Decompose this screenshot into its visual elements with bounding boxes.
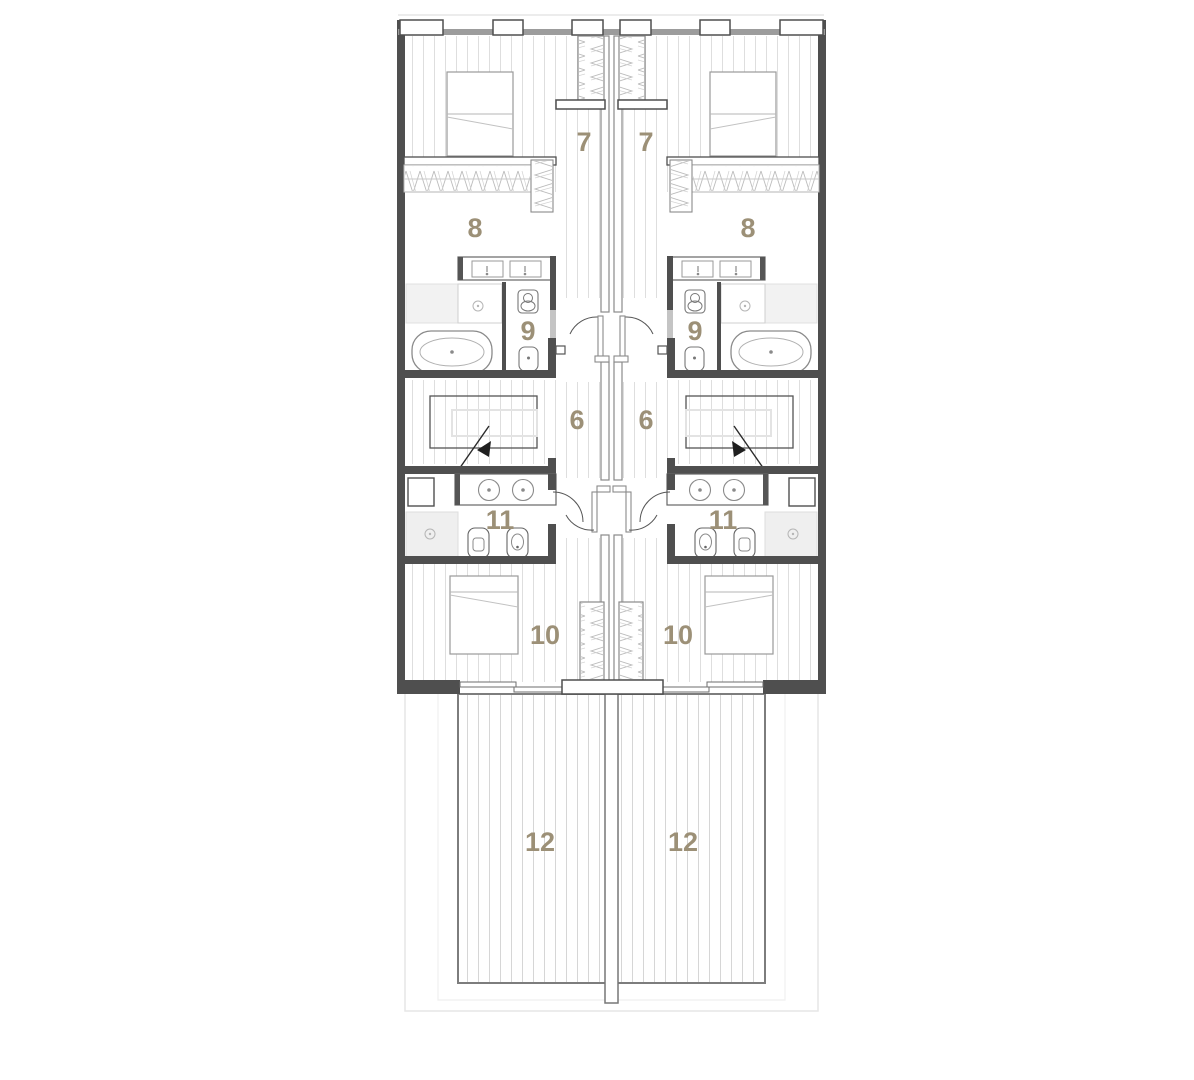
window-mullion [493, 20, 523, 35]
wardrobe-tall [578, 36, 604, 100]
door-jamb [556, 346, 565, 354]
room-label-11-right: 11 [709, 505, 738, 535]
wall [548, 338, 556, 372]
room-label-6-right: 6 [638, 405, 653, 435]
party-wall-segment [601, 362, 609, 480]
wall [548, 458, 556, 474]
toilet [518, 290, 538, 313]
bed-double [450, 576, 518, 654]
bathtub [412, 331, 492, 373]
wall [548, 474, 556, 490]
vanity-double-sink [458, 257, 552, 280]
room-label-11-left: 11 [486, 505, 515, 535]
cabinet [406, 284, 458, 323]
terrace-divider-wall [605, 694, 618, 1003]
sliding-door-panel [460, 682, 516, 687]
exterior-wall-bottom-corner [397, 680, 460, 694]
room-label-8-right: 8 [740, 213, 755, 243]
wall [550, 256, 556, 310]
door-swing-clearance [556, 298, 601, 382]
room-label-12-right: 12 [668, 827, 698, 857]
window-mullion [572, 20, 603, 35]
room-label-9-left: 9 [520, 316, 535, 346]
shower-tray [458, 284, 502, 323]
wc-partition-wall [502, 282, 506, 374]
bed-double [447, 72, 513, 156]
wall [404, 556, 556, 564]
niche [408, 478, 434, 506]
bidet [519, 347, 538, 371]
party-wall-bottom-block [562, 680, 663, 694]
door-leaf [598, 316, 603, 358]
room-label-10-right: 10 [663, 620, 693, 650]
floor-plan: 7 7 8 8 9 9 6 6 11 11 10 10 12 12 [0, 0, 1194, 1080]
room-label-12-left: 12 [525, 827, 555, 857]
unit-left [397, 20, 612, 694]
room-label-7-right: 7 [638, 127, 653, 157]
unit-right [612, 20, 827, 694]
exterior-wall-left [397, 20, 405, 682]
room-label-9-right: 9 [687, 316, 702, 346]
room-label-8-left: 8 [467, 213, 482, 243]
window-mullion [400, 20, 443, 35]
room-label-6-left: 6 [569, 405, 584, 435]
wardrobe-tall [580, 602, 604, 680]
door-jamb [597, 486, 610, 492]
room-label-7-left: 7 [576, 127, 591, 157]
wall [404, 370, 556, 378]
vanity-double-sink-round [455, 474, 556, 505]
door-opening [550, 310, 556, 338]
door-leaf [592, 492, 597, 532]
wall [404, 466, 556, 474]
door-jamb [595, 356, 609, 362]
shower-tray [406, 512, 458, 560]
room-label-10-left: 10 [530, 620, 560, 650]
floor-plan-page: 7 7 8 8 9 9 6 6 11 11 10 10 12 12 [0, 0, 1194, 1080]
door-header [556, 100, 605, 109]
